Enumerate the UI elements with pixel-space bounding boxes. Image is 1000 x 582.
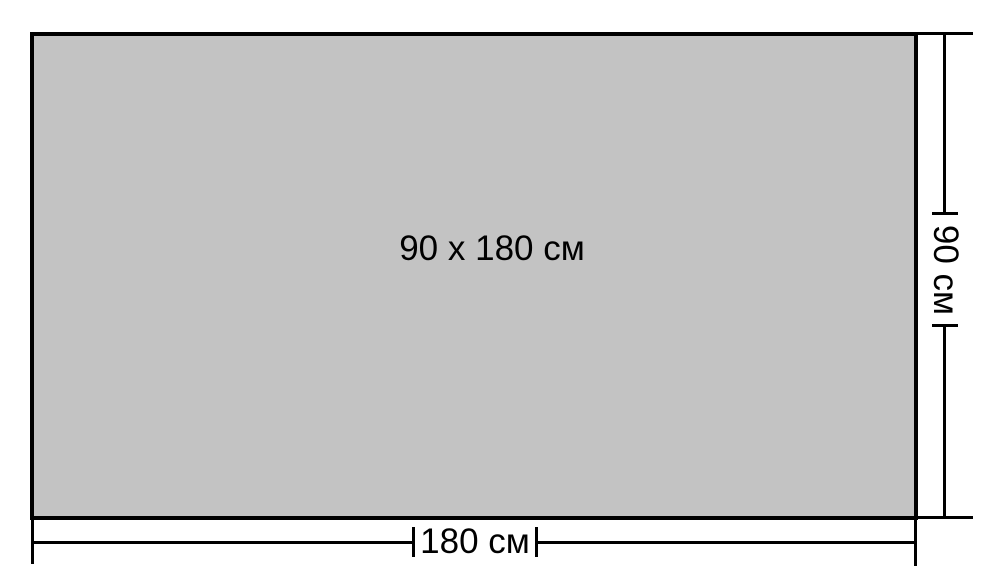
height-dimension-line-top-segment <box>943 33 946 214</box>
panel-size-label: 90 x 180 см <box>392 229 592 269</box>
width-dimension-line-right-segment <box>536 541 917 544</box>
height-dimension-line-bottom-segment <box>943 326 946 517</box>
width-dimension-line-left-segment <box>31 541 413 544</box>
width-dimension-label: 180 см <box>411 523 539 561</box>
height-dimension-label: 90 см <box>925 205 965 335</box>
panel-rectangle <box>30 32 918 520</box>
diagram-canvas: 90 x 180 см 180 см 90 см <box>0 0 1000 582</box>
